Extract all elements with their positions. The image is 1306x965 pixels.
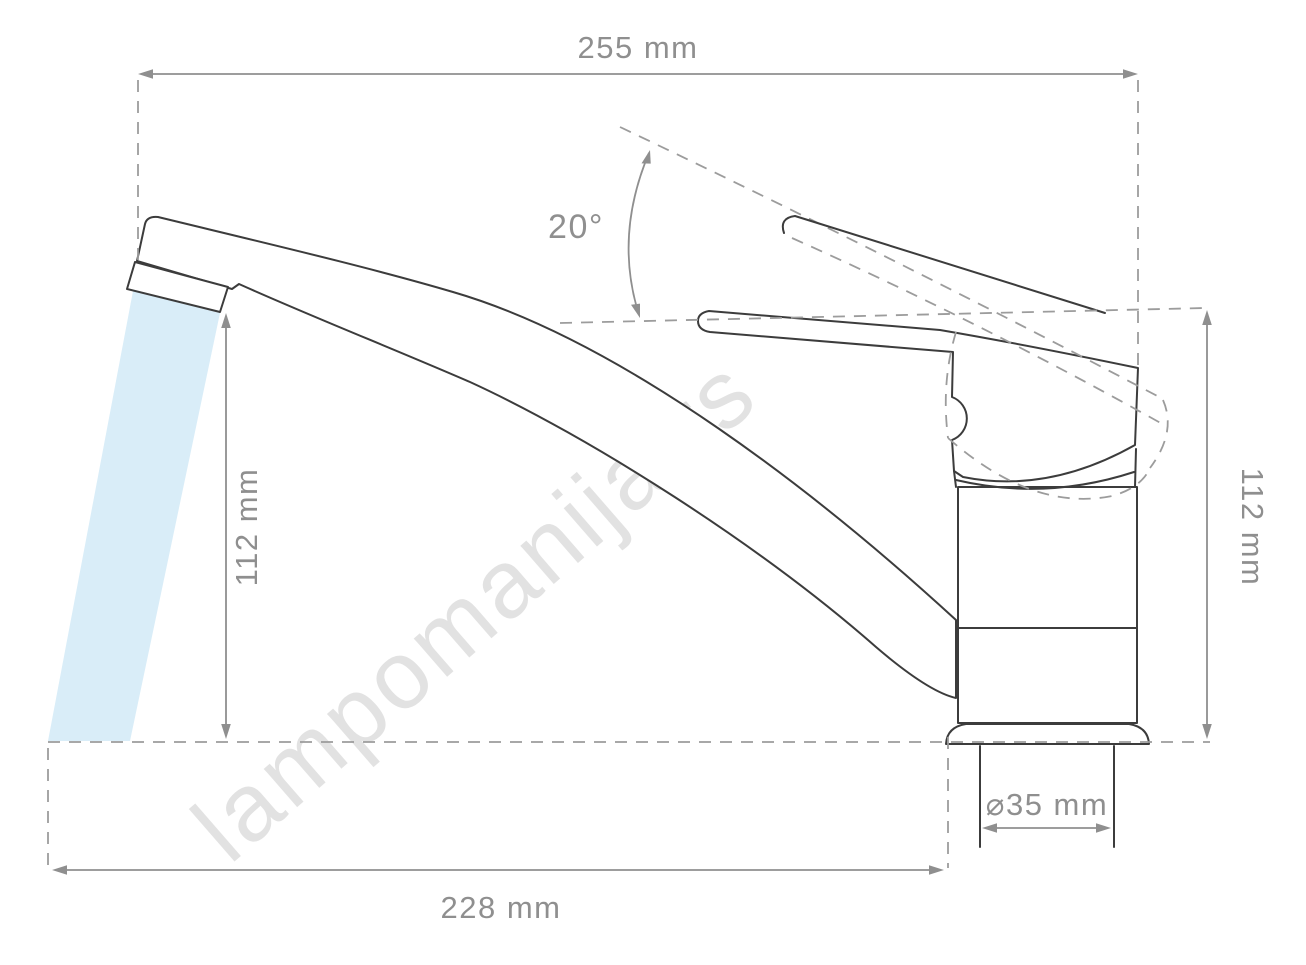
- water-stream: [48, 291, 220, 741]
- dimension-label-112-left: 112 mm: [229, 468, 264, 587]
- arrowhead-35-left: [982, 823, 997, 833]
- dimension-label-255: 255 mm: [578, 30, 699, 65]
- collar-left-edge: [954, 471, 956, 487]
- arrowhead-228-left: [52, 865, 67, 875]
- arrowhead-112R-bottom: [1202, 724, 1212, 739]
- raised-cap-right-dashed: [1150, 400, 1168, 468]
- faucet-body: [958, 487, 1137, 723]
- collar-right-edge: [1135, 449, 1136, 487]
- arrowhead-arc-bottom: [631, 303, 643, 320]
- arrowhead-255-right: [1123, 69, 1138, 79]
- angle-label-20: 20°: [548, 208, 604, 246]
- dimension-label-35: ⌀35 mm: [986, 787, 1108, 822]
- arrowhead-112L-top: [221, 313, 231, 328]
- faucet-handle: [698, 311, 1138, 481]
- arrowhead-255-left: [138, 69, 153, 79]
- arrowhead-112L-bottom: [221, 724, 231, 739]
- arrowhead-arc-top: [642, 149, 654, 166]
- arrowhead-112R-top: [1202, 310, 1212, 325]
- dimension-label-112-right: 112 mm: [1235, 468, 1270, 587]
- arrowhead-228-right: [929, 865, 944, 875]
- arrowhead-35-right: [1096, 823, 1111, 833]
- faucet-technical-drawing: lampomanija.rs 255 mm 20° 112 mm: [0, 0, 1306, 965]
- angle-arc-20: [629, 153, 649, 315]
- handle-top-level-dashed: [560, 308, 1205, 323]
- dimension-label-228: 228 mm: [441, 890, 562, 925]
- faucet-base-flare: [946, 724, 1149, 744]
- spout-arm: [137, 217, 956, 698]
- technical-drawing-canvas: lampomanija.rs 255 mm 20° 112 mm: [0, 0, 1306, 965]
